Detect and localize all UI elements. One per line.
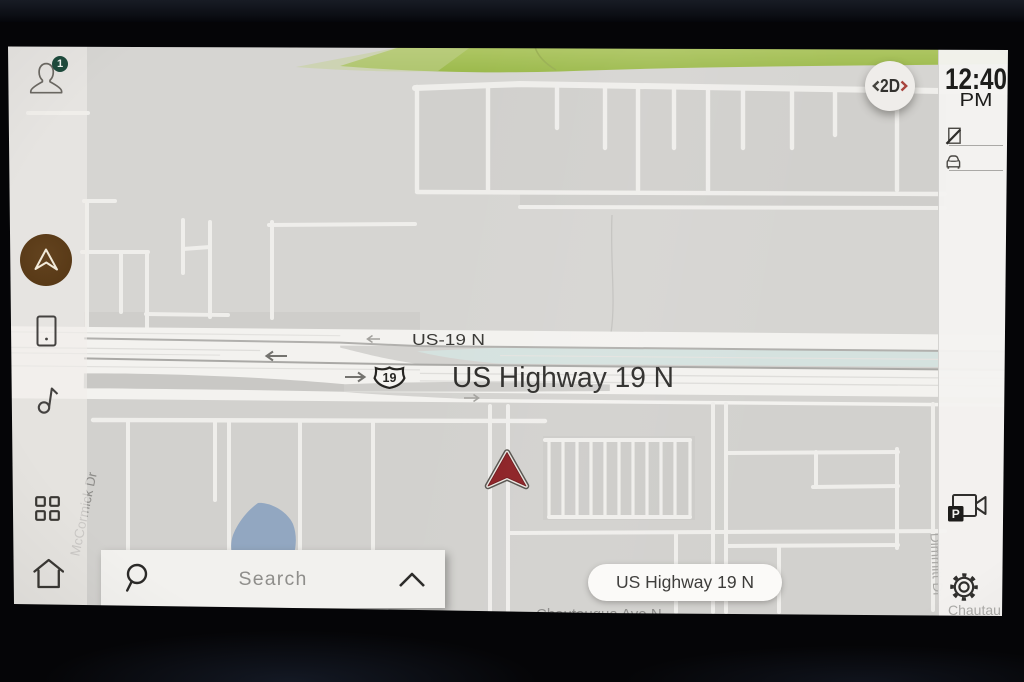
svg-text:PM: PM bbox=[960, 89, 993, 110]
svg-text:US-19 N: US-19 N bbox=[412, 332, 485, 349]
svg-text:US Highway 19 N: US Highway 19 N bbox=[452, 362, 674, 394]
svg-text:19: 19 bbox=[383, 371, 397, 385]
svg-text:2D: 2D bbox=[880, 76, 900, 96]
svg-text:P: P bbox=[952, 507, 960, 521]
